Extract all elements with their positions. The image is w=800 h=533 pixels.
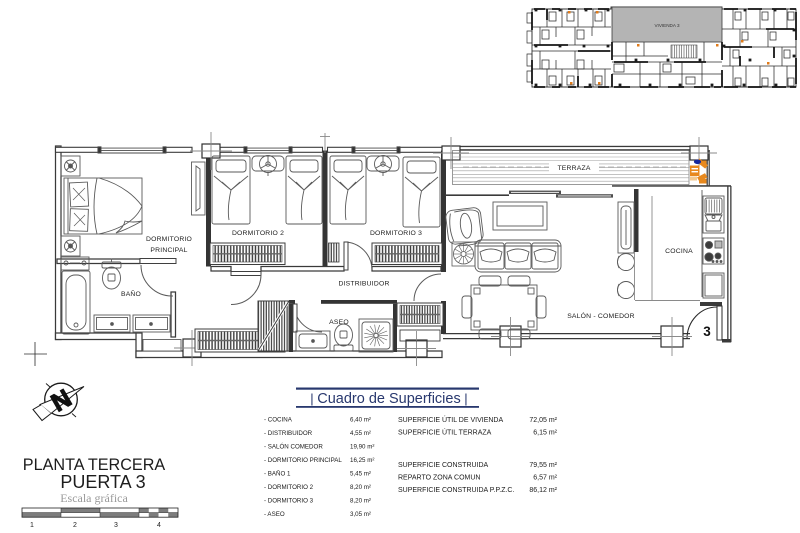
svg-text:- DORMITORIO PRINCIPAL: - DORMITORIO PRINCIPAL <box>264 457 342 464</box>
svg-text:SUPERFICIE CONSTRUIDA: SUPERFICIE CONSTRUIDA <box>398 462 489 469</box>
svg-text:3,05 m²: 3,05 m² <box>350 511 371 518</box>
svg-text:SUPERFICIE ÚTIL TERRAZA: SUPERFICIE ÚTIL TERRAZA <box>398 428 492 437</box>
svg-text:72,05 m²: 72,05 m² <box>529 417 557 424</box>
svg-text:8,20 m²: 8,20 m² <box>350 484 371 491</box>
svg-text:79,55 m²: 79,55 m² <box>529 462 557 469</box>
svg-text:16,25 m²: 16,25 m² <box>350 457 374 464</box>
svg-text:6,57 m²: 6,57 m² <box>533 475 557 482</box>
svg-text:3: 3 <box>114 522 118 529</box>
svg-text:3: 3 <box>703 324 711 339</box>
svg-text:- BAÑO 1: - BAÑO 1 <box>264 471 291 478</box>
svg-text:PUERTA 3: PUERTA 3 <box>60 472 145 492</box>
svg-text:- SALÓN COMEDOR: - SALÓN COMEDOR <box>264 444 323 451</box>
svg-text:|: | <box>464 391 467 406</box>
svg-text:- ASEO: - ASEO <box>264 511 285 518</box>
svg-text:- DORMITORIO 2: - DORMITORIO 2 <box>264 484 314 491</box>
svg-text:BAÑO: BAÑO <box>121 289 141 298</box>
svg-text:DORMITORIO 3: DORMITORIO 3 <box>370 230 422 237</box>
svg-text:COCINA: COCINA <box>665 248 693 255</box>
svg-text:DORMITORIO: DORMITORIO <box>146 236 192 243</box>
svg-text:|: | <box>310 391 313 406</box>
svg-text:- DISTRIBUIDOR: - DISTRIBUIDOR <box>264 430 313 437</box>
svg-text:DORMITORIO 2: DORMITORIO 2 <box>232 230 284 237</box>
svg-text:DISTRIBUIDOR: DISTRIBUIDOR <box>338 281 389 288</box>
svg-text:SUPERFICIE CONSTRUIDA P.P.Z.C.: SUPERFICIE CONSTRUIDA P.P.Z.C. <box>398 487 514 494</box>
svg-text:TERRAZA: TERRAZA <box>557 165 590 172</box>
svg-text:- DORMITORIO 3: - DORMITORIO 3 <box>264 498 314 505</box>
svg-text:8,20 m²: 8,20 m² <box>350 498 371 505</box>
svg-text:Escala gráfica: Escala gráfica <box>60 491 128 505</box>
svg-text:Cuadro de Superficies: Cuadro de Superficies <box>317 391 460 407</box>
svg-text:19,90 m²: 19,90 m² <box>350 444 374 451</box>
svg-text:REPARTO ZONA COMUN: REPARTO ZONA COMUN <box>398 475 480 482</box>
svg-text:- COCINA: - COCINA <box>264 417 293 424</box>
svg-text:4: 4 <box>157 522 161 529</box>
svg-text:6,15 m²: 6,15 m² <box>533 430 557 437</box>
svg-text:5,45 m²: 5,45 m² <box>350 471 371 478</box>
svg-text:6,40 m²: 6,40 m² <box>350 417 371 424</box>
svg-text:SALÓN - COMEDOR: SALÓN - COMEDOR <box>567 311 635 320</box>
svg-text:VIVIENDA 3: VIVIENDA 3 <box>654 23 679 28</box>
svg-text:2: 2 <box>73 522 77 529</box>
svg-text:86,12 m²: 86,12 m² <box>529 487 557 494</box>
svg-text:1: 1 <box>30 522 34 529</box>
svg-text:PRINCIPAL: PRINCIPAL <box>150 247 187 254</box>
svg-text:SUPERFICIE ÚTIL DE VIVIENDA: SUPERFICIE ÚTIL DE VIVIENDA <box>398 415 503 424</box>
svg-text:4,55 m²: 4,55 m² <box>350 430 371 437</box>
